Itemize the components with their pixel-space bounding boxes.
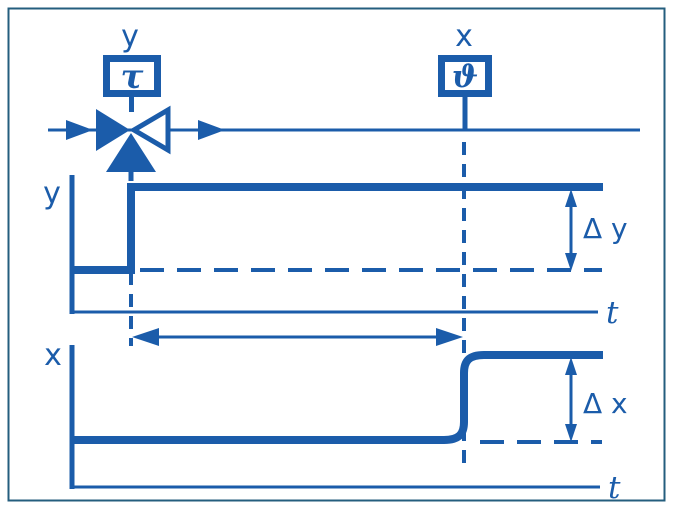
flow-arrow-in-icon: [66, 120, 93, 140]
x-plot-axis-label: x: [44, 338, 62, 373]
x-response-curve: [72, 355, 603, 440]
dead-time-diagram: y τ x ϑ y t Δ y x t Δ x: [0, 0, 673, 509]
actuator-symbol: τ: [121, 57, 144, 97]
y-plot-time-label: t: [606, 295, 619, 331]
delta-x-label: Δ x: [583, 387, 628, 420]
delta-y-label: Δ y: [583, 212, 628, 245]
y-plot-axis-label: y: [43, 176, 61, 211]
three-way-valve-icon: [96, 97, 168, 181]
delta-x-arrow: [565, 357, 577, 442]
sensor-symbol: ϑ: [452, 59, 478, 95]
flow-arrow-out-icon: [198, 120, 225, 140]
sensor-signal-label: x: [455, 19, 473, 54]
delta-y-arrow: [565, 189, 577, 271]
x-plot-time-label: t: [608, 470, 621, 506]
valve-right-triangle: [134, 110, 168, 150]
diagram-canvas: y τ x ϑ y t Δ y x t Δ x: [0, 0, 673, 509]
actuator-signal-label: y: [121, 19, 139, 54]
dead-time-arrow: [132, 328, 463, 346]
y-step-curve: [72, 187, 603, 270]
